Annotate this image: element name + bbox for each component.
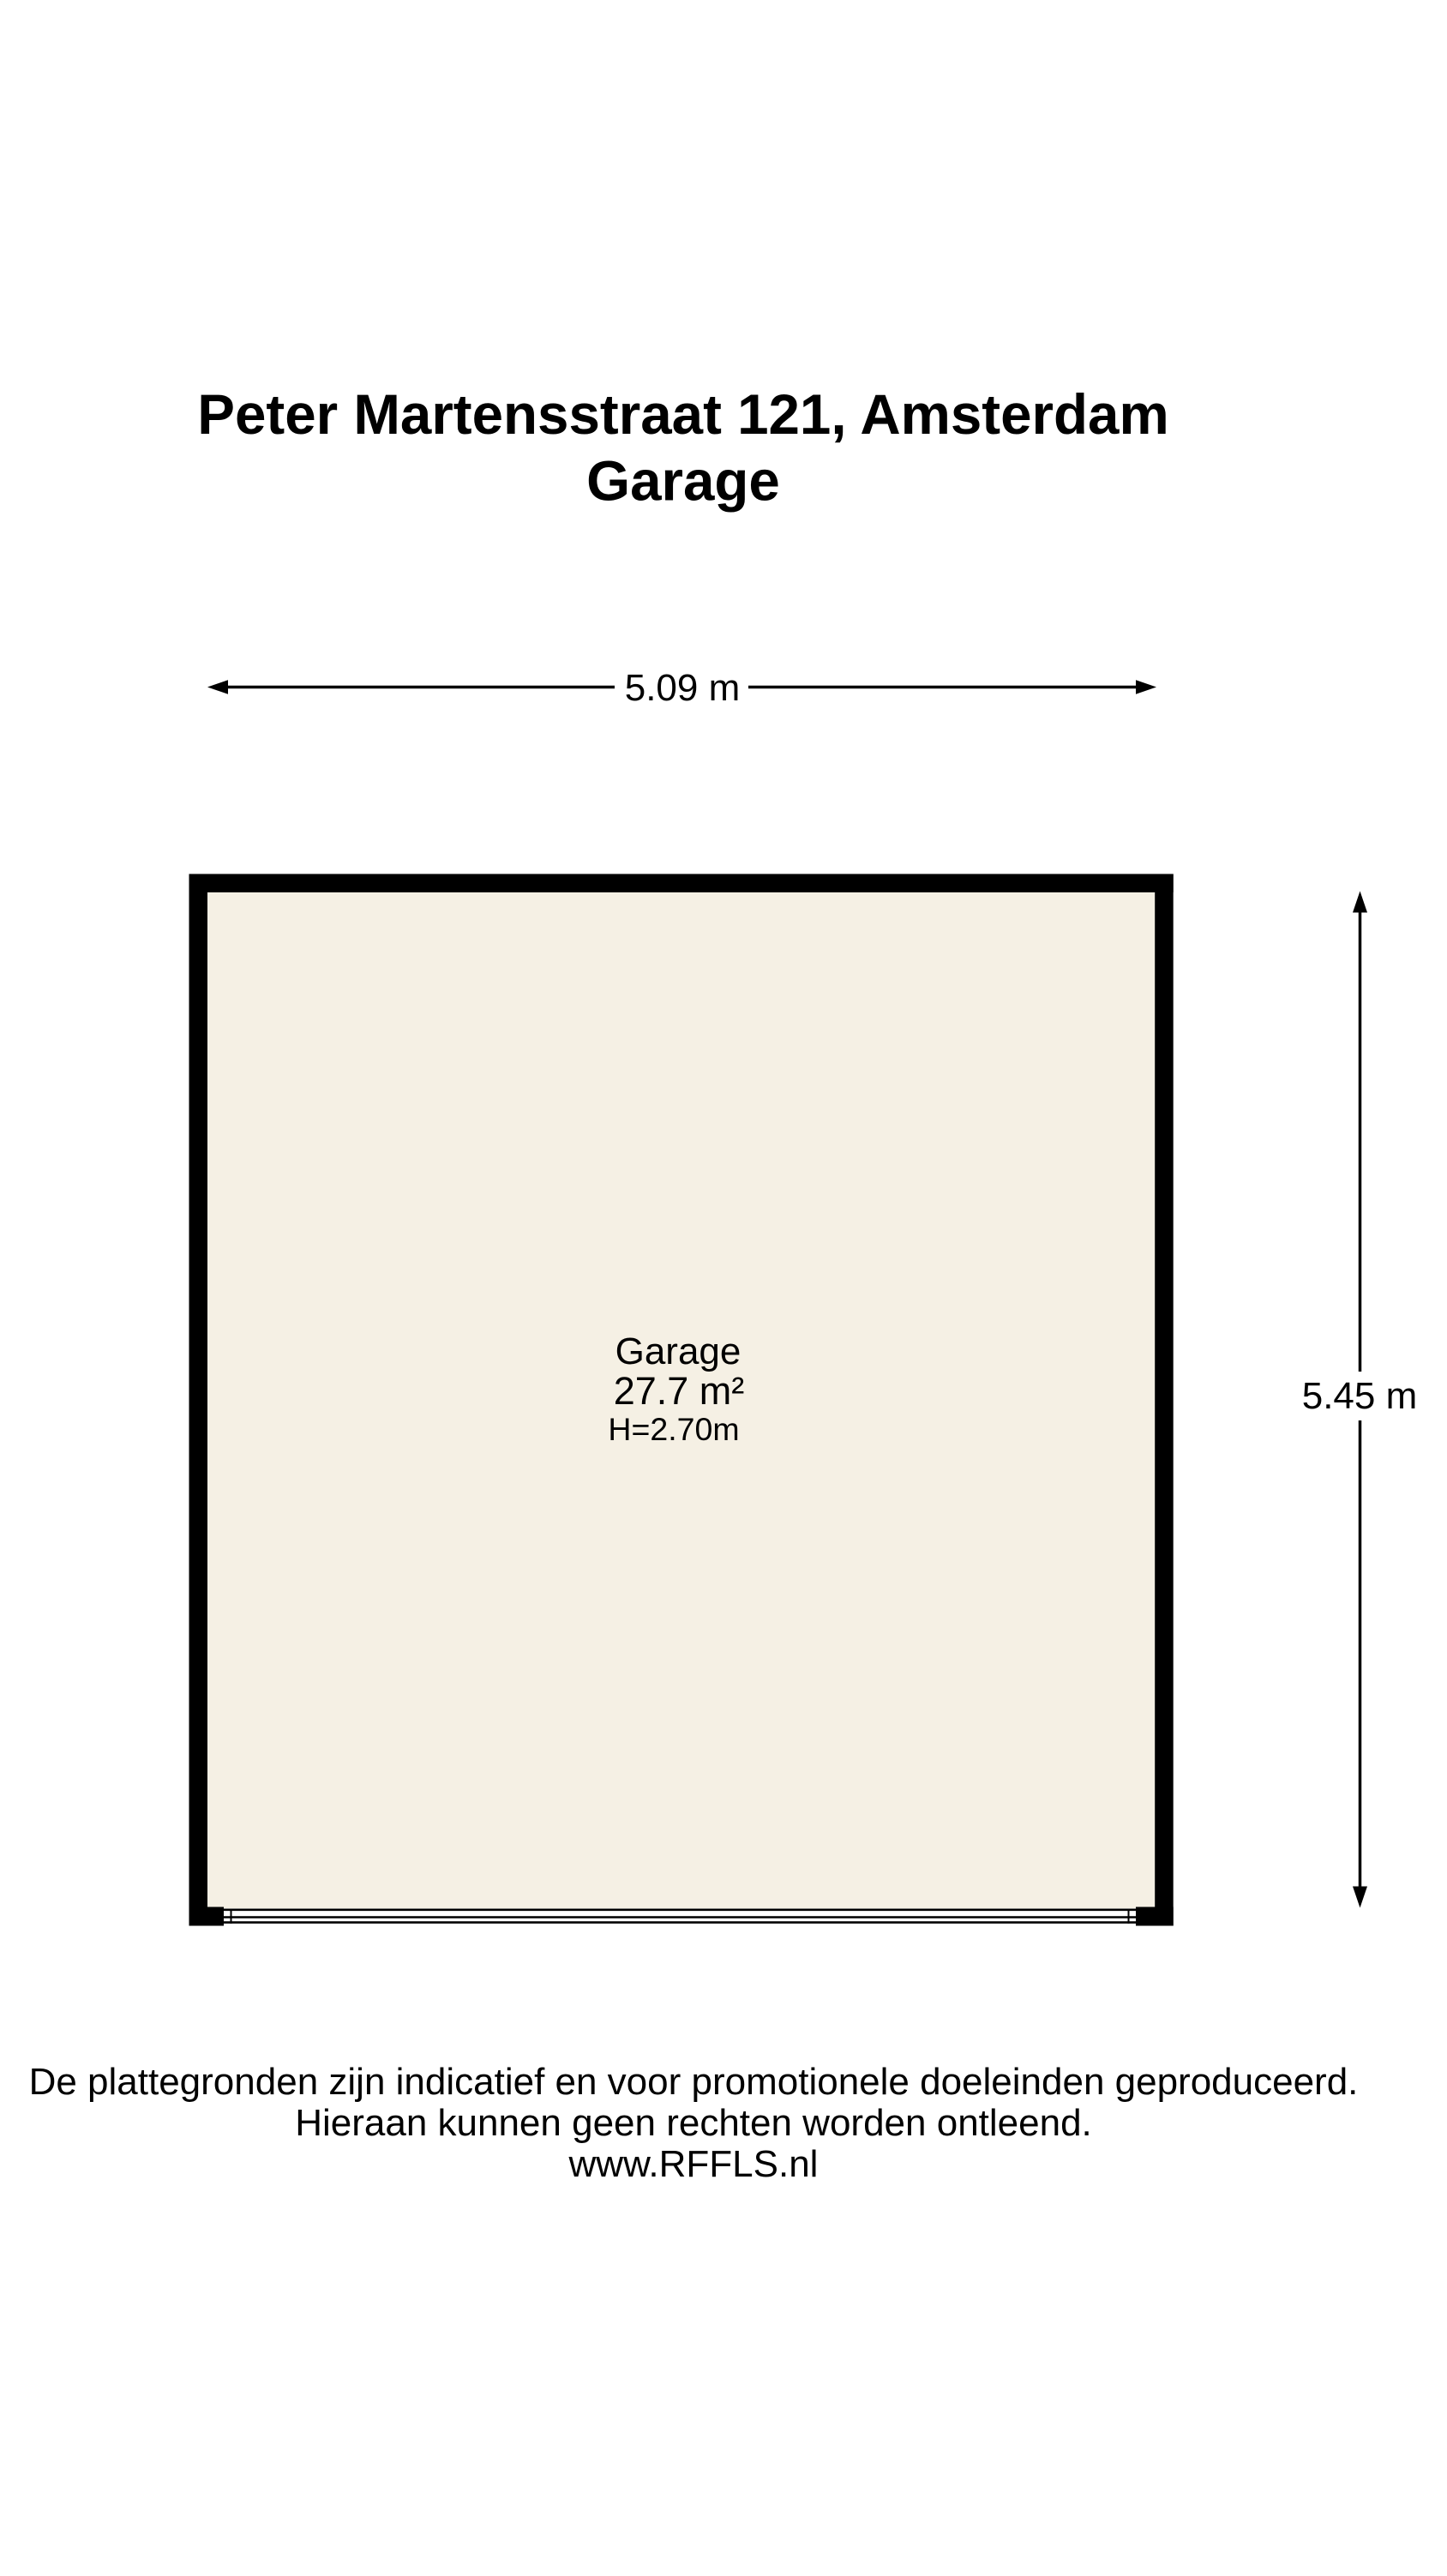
svg-text:Hieraan kunnen geen rechten wo: Hieraan kunnen geen rechten worden ontle… [295, 2102, 1092, 2144]
svg-text:H=2.70m: H=2.70m [608, 1411, 739, 1447]
svg-text:27.7 m²: 27.7 m² [614, 1369, 745, 1413]
svg-text:Garage: Garage [615, 1330, 742, 1372]
svg-text:www.RFFLS.nl: www.RFFLS.nl [568, 2143, 819, 2185]
svg-text:5.45 m: 5.45 m [1302, 1375, 1418, 1417]
svg-text:De plattegronden zijn indicati: De plattegronden zijn indicatief en voor… [29, 2061, 1359, 2103]
svg-text:5.09 m: 5.09 m [625, 667, 741, 709]
svg-text:Garage: Garage [586, 450, 780, 513]
svg-text:Peter Martensstraat 121, Amste: Peter Martensstraat 121, Amsterdam [197, 383, 1168, 446]
